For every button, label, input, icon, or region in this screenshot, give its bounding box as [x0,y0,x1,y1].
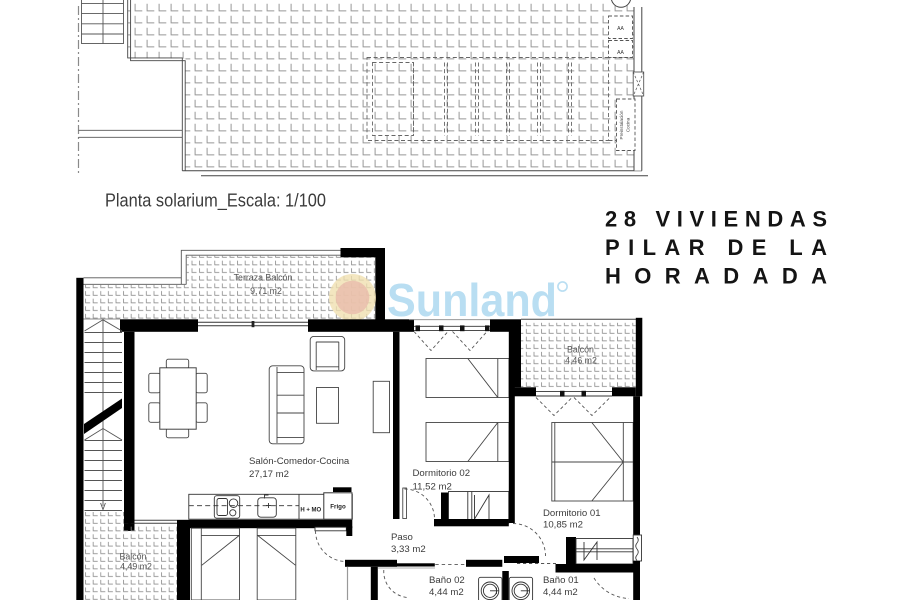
svg-text:Cocina: Cocina [626,117,631,132]
svg-text:Baño 02: Baño 02 [429,575,465,586]
svg-text:4,46 m2: 4,46 m2 [565,356,597,366]
svg-text:Dormitorio 01: Dormitorio 01 [543,508,601,519]
svg-text:3,33 m2: 3,33 m2 [391,544,426,555]
svg-text:H + MO: H + MO [300,508,321,514]
svg-text:Sunland: Sunland [387,274,557,326]
svg-text:4,44 m2: 4,44 m2 [543,587,578,598]
svg-text:9,71 m2: 9,71 m2 [250,286,282,296]
svg-text:Frigo: Frigo [330,504,346,511]
svg-text:4,44 m2: 4,44 m2 [429,587,464,598]
svg-text:AA: AA [617,50,624,56]
svg-text:Balcón: Balcón [567,345,594,355]
svg-text:Preinstalación: Preinstalación [619,110,624,139]
svg-text:Planta solarium_Escala: 1/100: Planta solarium_Escala: 1/100 [105,190,326,212]
svg-text:Baño 01: Baño 01 [543,575,579,586]
svg-text:Dormitorio 02: Dormitorio 02 [413,468,471,479]
svg-text:Salón-Comedor-Cocina: Salón-Comedor-Cocina [249,456,350,467]
svg-text:27,17 m2: 27,17 m2 [249,469,289,480]
svg-text:AA: AA [617,26,624,32]
svg-text:4,49 m2: 4,49 m2 [120,562,152,572]
svg-text:11,52 m2: 11,52 m2 [413,482,452,493]
svg-text:Terraza Balcón: Terraza Balcón [234,273,293,283]
svg-text:10,85 m2: 10,85 m2 [543,520,583,531]
svg-text:Paso: Paso [391,532,413,543]
svg-text:Balcón: Balcón [120,552,147,562]
